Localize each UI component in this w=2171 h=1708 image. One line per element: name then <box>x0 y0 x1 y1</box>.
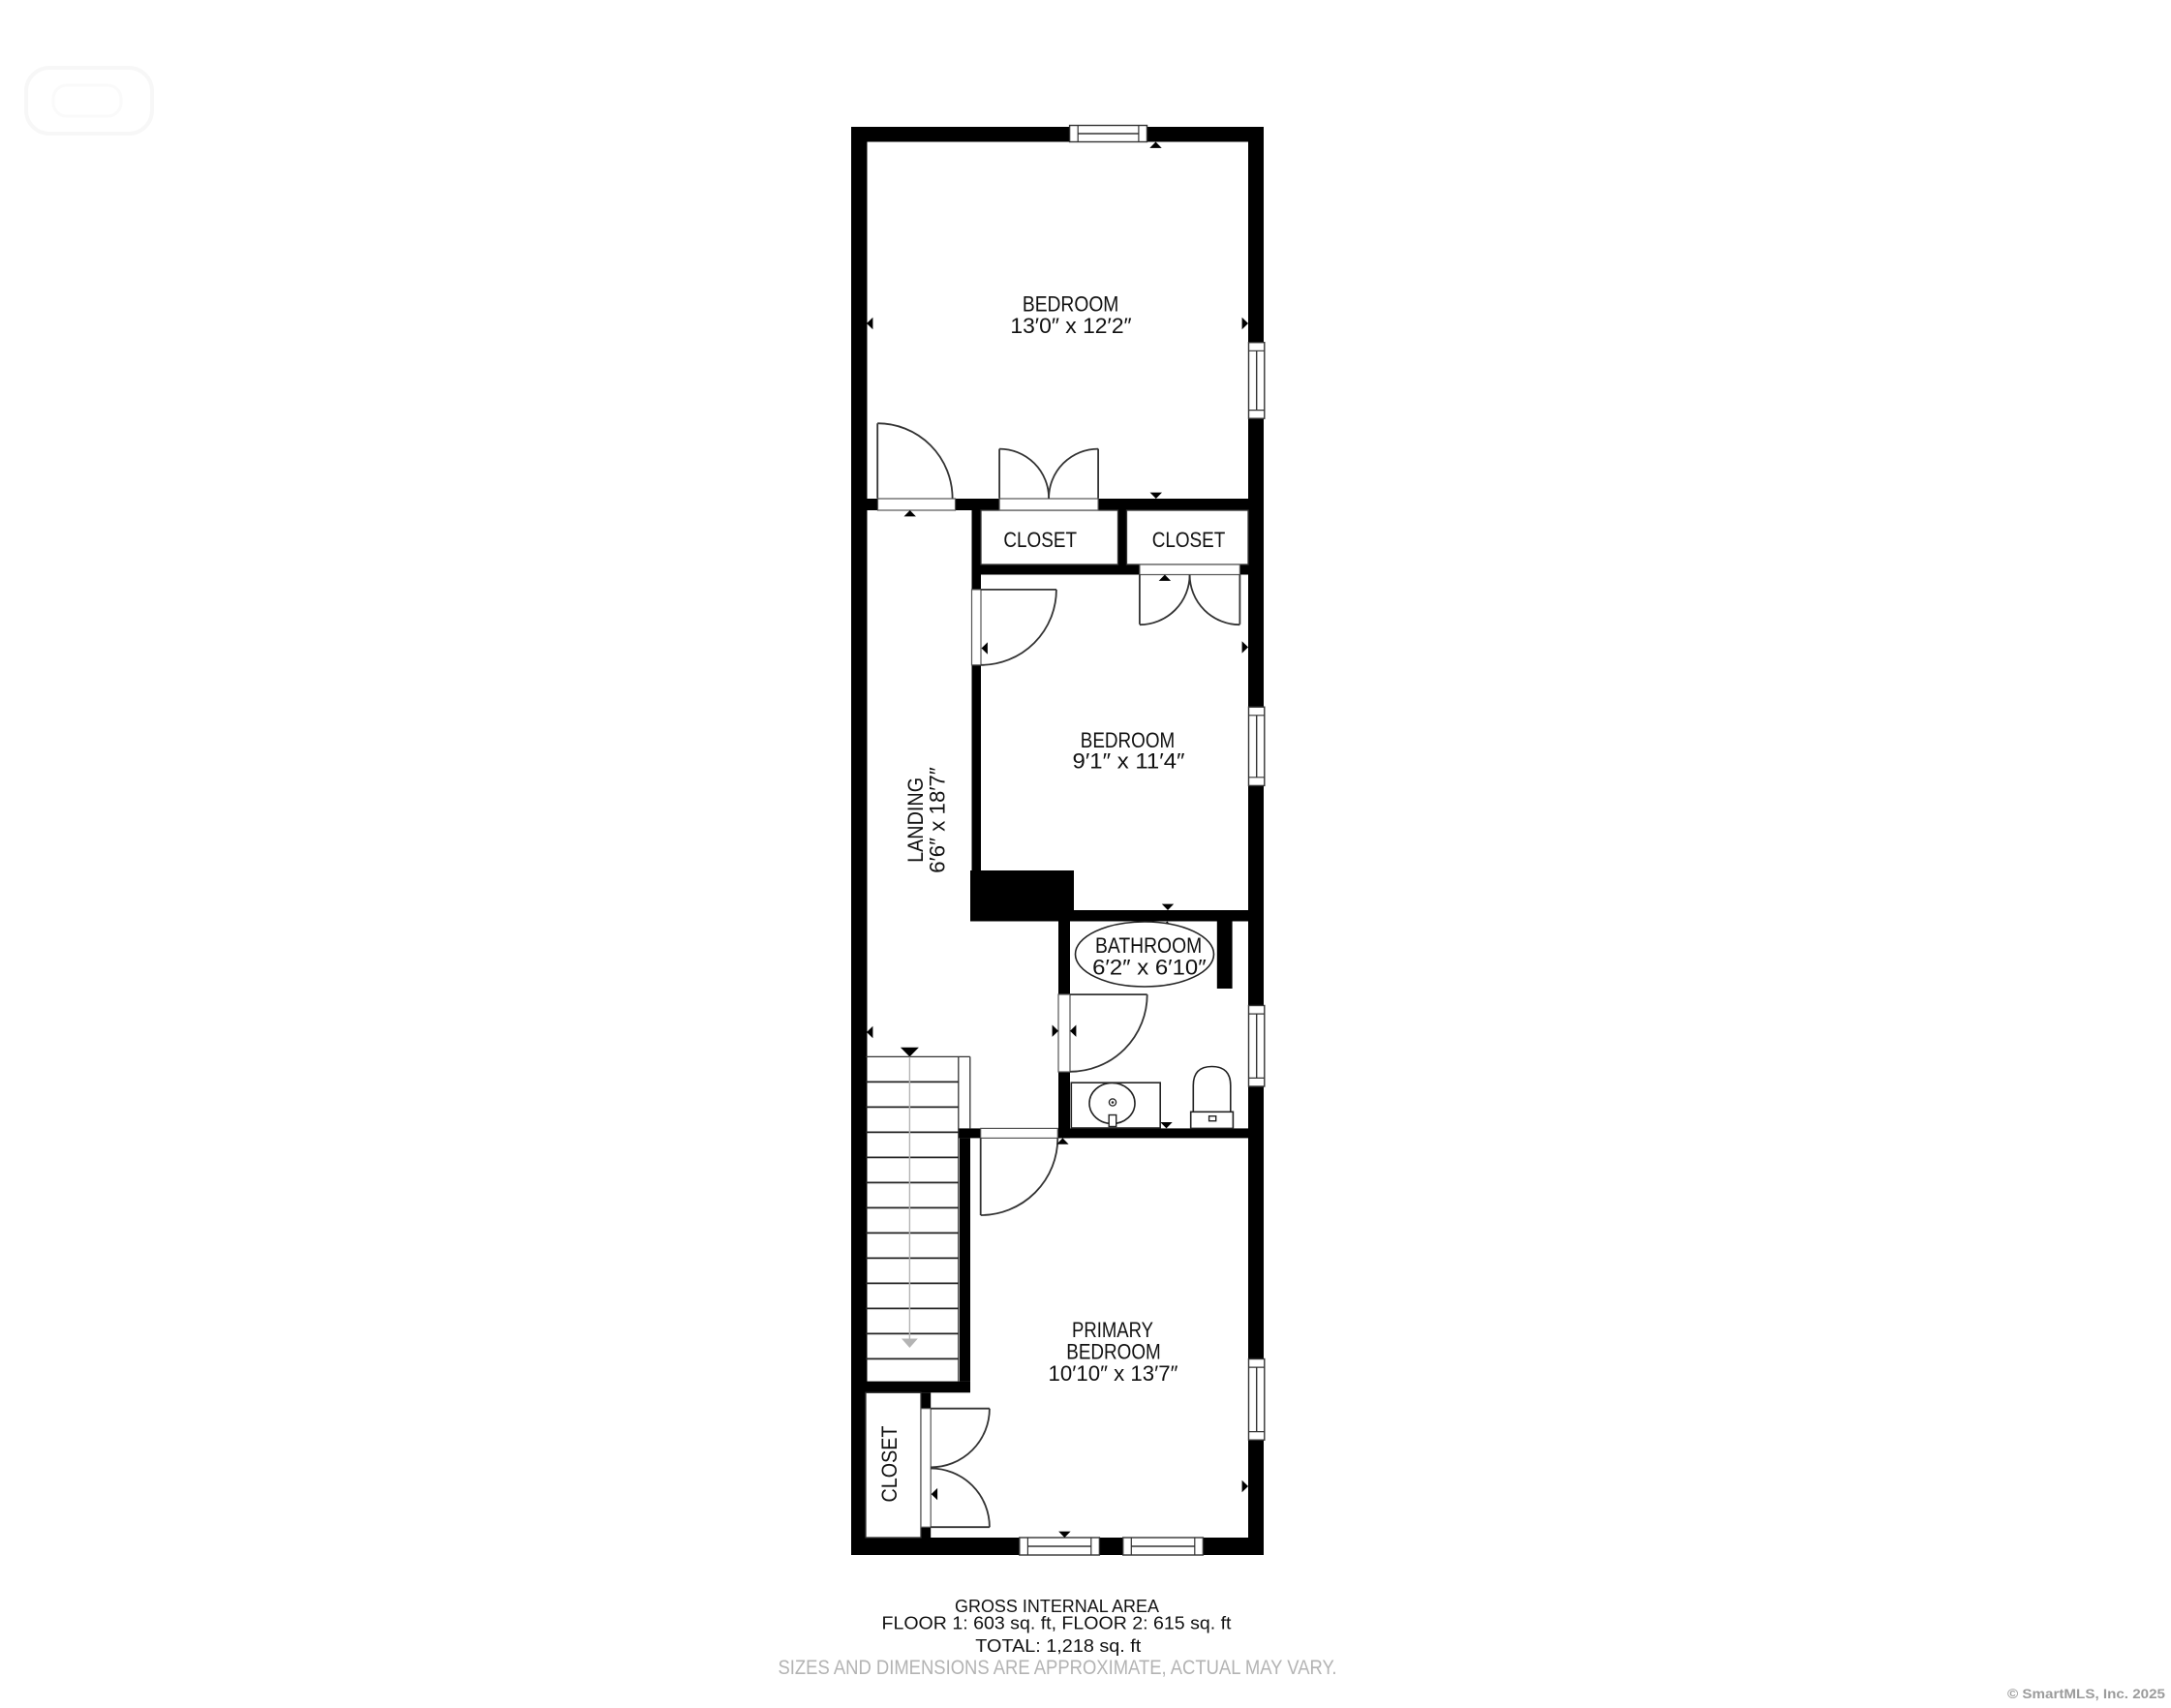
svg-text:CLOSET: CLOSET <box>1152 528 1226 552</box>
svg-text:TOTAL: 1,218 sq. ft: TOTAL: 1,218 sq. ft <box>975 1636 1141 1656</box>
svg-text:FLOOR 1: 603 sq. ft, FLOOR 2:: FLOOR 1: 603 sq. ft, FLOOR 2: 615 sq. ft <box>882 1614 1232 1633</box>
svg-text:SIZES AND DIMENSIONS ARE APPRO: SIZES AND DIMENSIONS ARE APPROXIMATE, AC… <box>779 1656 1337 1679</box>
svg-text:13′0″ x 12′2″: 13′0″ x 12′2″ <box>1010 314 1131 338</box>
svg-text:6′6″ x 18′7″: 6′6″ x 18′7″ <box>925 767 949 873</box>
svg-text:9′1″ x 11′4″: 9′1″ x 11′4″ <box>1073 749 1185 774</box>
svg-text:BEDROOM: BEDROOM <box>1066 1340 1161 1364</box>
svg-text:© SmartMLS, Inc. 2025: © SmartMLS, Inc. 2025 <box>2007 1686 2165 1701</box>
svg-text:CLOSET: CLOSET <box>877 1425 902 1502</box>
svg-text:LANDING: LANDING <box>903 778 928 863</box>
svg-text:BEDROOM: BEDROOM <box>1023 292 1119 317</box>
svg-text:PRIMARY: PRIMARY <box>1072 1318 1153 1342</box>
svg-text:10′10″ x 13′7″: 10′10″ x 13′7″ <box>1049 1361 1178 1386</box>
svg-text:CLOSET: CLOSET <box>1003 528 1077 552</box>
svg-text:6′2″ x 6′10″: 6′2″ x 6′10″ <box>1092 955 1207 979</box>
